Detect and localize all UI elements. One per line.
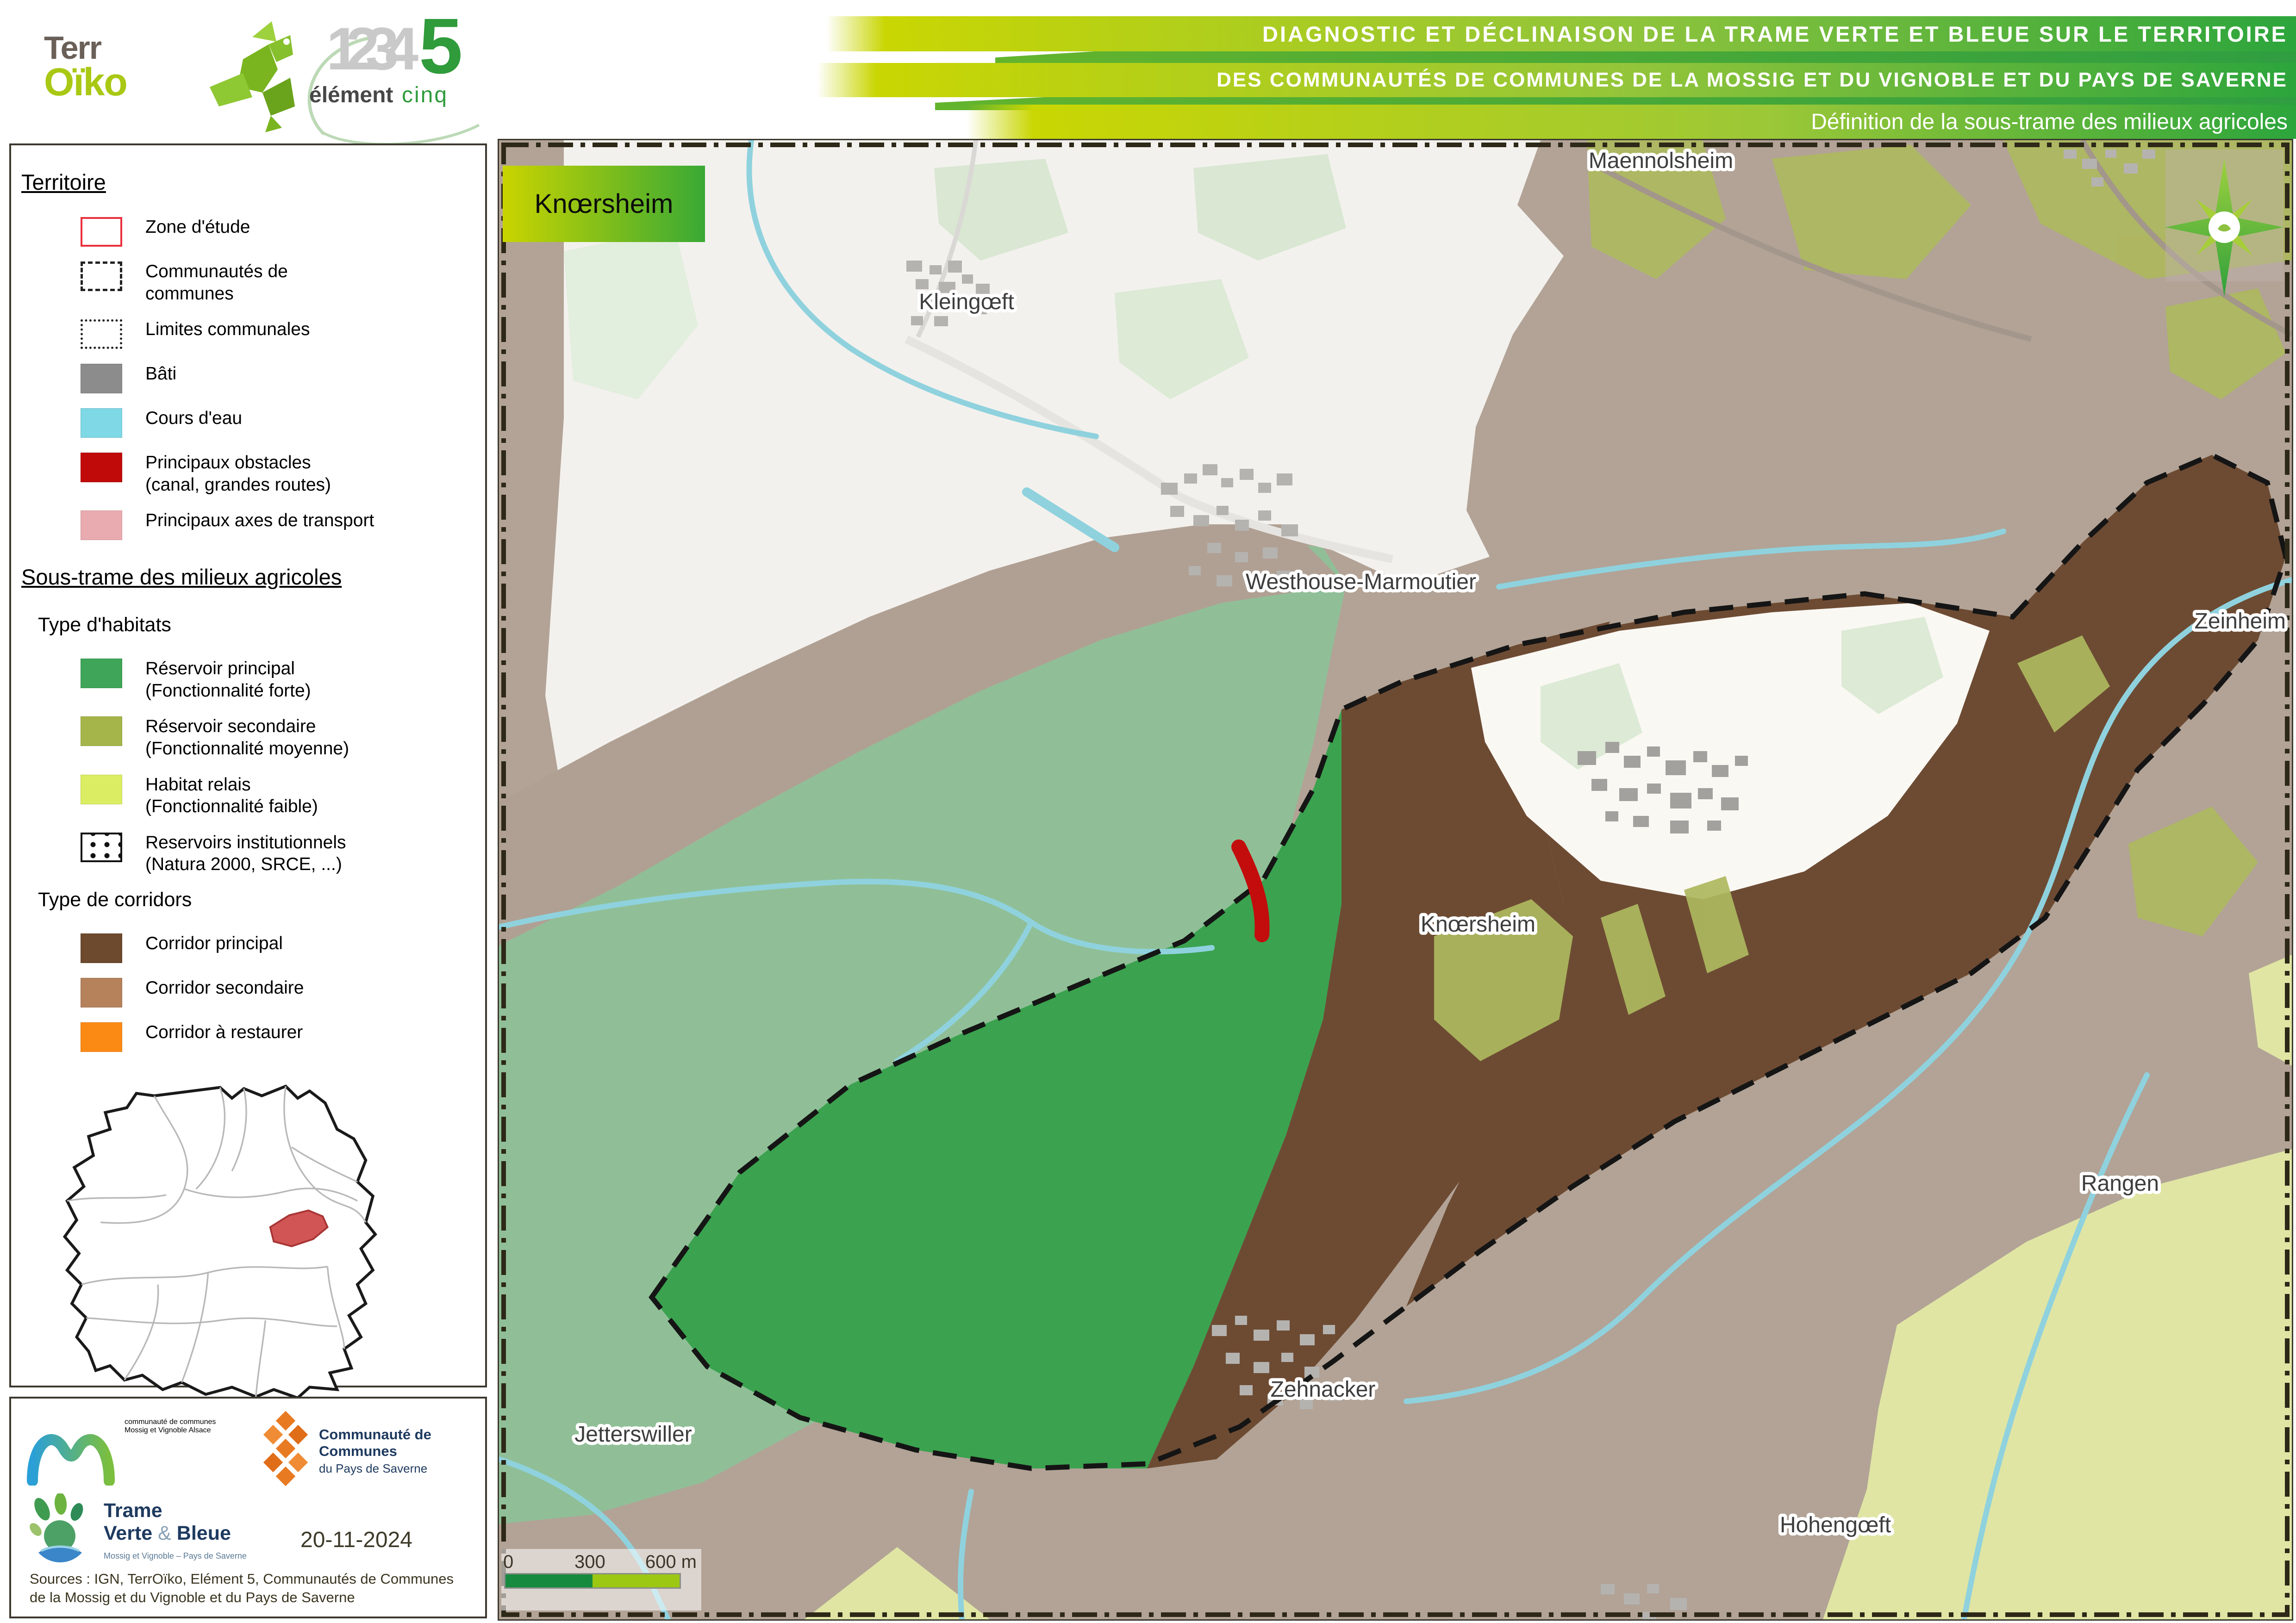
legend-subtitle-corridors: Type de corridors [38, 889, 485, 911]
mossig-logo-icon [24, 1416, 117, 1486]
mossig-et: et [150, 1426, 156, 1434]
corridor-principal-swatch [81, 933, 122, 963]
inset-map [53, 1079, 485, 1433]
cours-eau-swatch [81, 408, 122, 438]
title-line-2: DES COMMUNAUTÉS DE COMMUNES DE LA MOSSIG… [1217, 68, 2296, 92]
sources-text: Sources : IGN, TerrOïko, Elément 5, Comm… [30, 1570, 469, 1607]
title-line-3: Définition de la sous-trame des milieux … [1811, 109, 2296, 135]
legend-item-obstacles: Principaux obstacles(canal, grandes rout… [81, 452, 485, 496]
map-title-box: Knœrsheim [503, 166, 705, 242]
reservoirs-institutionnels-swatch [81, 833, 122, 862]
legend-label: Principaux axes de transport [145, 510, 374, 532]
map-label-jetterswiller: Jetterswiller [574, 1422, 692, 1447]
scale-bar-strip [504, 1573, 681, 1589]
legend-panel: Territoire Zone d'étude Communautés de c… [9, 143, 487, 1387]
title-line-1: DIAGNOSTIC ET DÉCLINAISON DE LA TRAME VE… [1262, 21, 2296, 47]
axes-transport-swatch [81, 510, 122, 540]
mossig-logo-text: communauté de communes Mossig et Vignobl… [125, 1418, 254, 1435]
legend-label: Zone d'étude [145, 216, 250, 238]
legend-item-zone-etude: Zone d'étude [81, 216, 485, 247]
legend-label: Corridor à restaurer [145, 1021, 303, 1044]
map[interactable]: Maennolsheim Kleingœft Westhouse-Marmout… [498, 139, 2293, 1621]
map-label-knoersheim: Knœrsheim [1421, 912, 1535, 937]
scale-ticks: 0 300 600 m [501, 1552, 701, 1572]
legend-label: Réservoir secondaire(Fonctionnalité moye… [145, 715, 349, 759]
legend-subtitle-habitats: Type d'habitats [38, 614, 485, 636]
inset-territory-outline [65, 1086, 375, 1398]
map-label-rangen: Rangen [2081, 1171, 2159, 1196]
reservoir-secondaire-swatch [81, 716, 122, 746]
obstacles-swatch [81, 453, 122, 482]
mossig-region: Alsace [188, 1426, 211, 1434]
saverne-logo-text: Communauté de Communes du Pays de Savern… [319, 1426, 486, 1476]
element5-word2: cinq [402, 82, 448, 108]
limites-swatch [81, 319, 122, 349]
legend-label: Cours d'eau [145, 407, 242, 429]
legend-title-territoire: Territoire [21, 169, 485, 195]
scale-tick-0: 0 [503, 1552, 513, 1573]
saverne-logo-icon [259, 1410, 314, 1489]
map-label-hohengoeft: Hohengœft [1780, 1513, 1891, 1537]
zone-etude-swatch [81, 217, 122, 247]
legend-label: Principaux obstacles(canal, grandes rout… [145, 452, 331, 496]
map-canvas[interactable]: Maennolsheim Kleingœft Westhouse-Marmout… [499, 140, 2292, 1619]
legend-item-corridor-restaurer: Corridor à restaurer [81, 1021, 485, 1052]
legend-label: Corridor principal [145, 933, 283, 955]
legend-item-corridor-secondaire: Corridor secondaire [81, 977, 485, 1007]
tvb-logo-icon [23, 1493, 97, 1567]
bati-swatch [81, 364, 122, 393]
map-label-kleingoeft: Kleingœft [919, 290, 1014, 314]
saverne-line2: du Pays de Saverne [319, 1461, 486, 1476]
scale-tick-600: 600 m [645, 1552, 697, 1573]
scale-segment-1 [505, 1574, 593, 1587]
element5-logo: 1234 5 élément cinq [301, 14, 486, 134]
element5-word1: élément [309, 82, 393, 108]
element5-numbers: 1234 [326, 14, 405, 83]
scale-segment-2 [593, 1574, 680, 1587]
legend-item-reservoir-principal: Réservoir principal(Fonctionnalité forte… [81, 658, 485, 702]
legend-item-habitat-relais: Habitat relais(Fonctionnalité faible) [81, 774, 485, 818]
legend-title-soustrame: Sous-trame des milieux agricoles [21, 564, 485, 590]
map-label-zehnacker: Zehnacker [1271, 1377, 1376, 1402]
legend-label: Communautés de communes [145, 261, 340, 305]
scale-tick-300: 300 [574, 1552, 605, 1573]
legend-label: Limites communales [145, 318, 310, 341]
map-label-westhouse: Westhouse-Marmoutier [1246, 570, 1476, 594]
legend-item-cours-eau: Cours d'eau [81, 407, 485, 438]
reservoir-principal-swatch [81, 659, 122, 688]
legend-label: Reservoirs institutionnels(Natura 2000, … [145, 832, 346, 876]
legend-item-axes-transport: Principaux axes de transport [81, 510, 485, 540]
tvb-line1: Trame [104, 1499, 256, 1522]
legend-label: Habitat relais(Fonctionnalité faible) [145, 774, 318, 818]
legend-label: Réservoir principal(Fonctionnalité forte… [145, 658, 311, 702]
corridor-restaurer-swatch [81, 1022, 122, 1052]
legend-item-communautes: Communautés de communes [81, 261, 485, 305]
communautes-swatch [81, 261, 122, 291]
tvb-logo-text: Trame Verte & Bleue Mossig et Vignoble –… [104, 1499, 256, 1561]
inset-map-canvas [53, 1079, 423, 1430]
terroiko-logo: Terr Oïko [44, 13, 303, 138]
mossig-name1: Mossig [125, 1426, 148, 1434]
mossig-name2: Vignoble [158, 1426, 187, 1434]
scale-bar: 0 300 600 m [501, 1549, 701, 1611]
frog-icon [183, 18, 312, 138]
legend-label: Bâti [145, 363, 176, 385]
title-bar-3: Définition de la sous-trame des milieux … [967, 105, 2296, 139]
saverne-line1: Communauté de Communes [319, 1426, 486, 1460]
title-bar-1: DIAGNOSTIC ET DÉCLINAISON DE LA TRAME VE… [826, 16, 2296, 51]
compass-icon [2165, 149, 2284, 297]
tvb-line2: Verte & Bleue [104, 1522, 256, 1545]
legend-item-corridor-principal: Corridor principal [81, 933, 485, 963]
legend-item-reservoir-secondaire: Réservoir secondaire(Fonctionnalité moye… [81, 715, 485, 759]
mossig-top-line: communauté de communes [125, 1418, 216, 1426]
legend-item-bati: Bâti [81, 363, 485, 393]
element5-five: 5 [419, 1, 463, 92]
corridor-secondaire-swatch [81, 978, 122, 1007]
legend-label: Corridor secondaire [145, 977, 304, 999]
tvb-subtitle: Mossig et Vignoble – Pays de Saverne [104, 1551, 256, 1561]
legend-item-limites: Limites communales [81, 318, 485, 349]
map-label-zeinheim: Zeinheim [2195, 609, 2286, 634]
map-date: 20-11-2024 [300, 1527, 412, 1553]
habitat-relais-swatch [81, 775, 122, 804]
title-bar-2: DES COMMUNAUTÉS DE COMMUNES DE LA MOSSIG… [817, 63, 2296, 97]
legend-item-reservoirs-institutionnels: Reservoirs institutionnels(Natura 2000, … [81, 832, 485, 876]
credits-panel: communauté de communes Mossig et Vignobl… [9, 1397, 487, 1618]
map-label-maennolsheim: Maennolsheim [1589, 149, 1733, 173]
page: Terr Oïko 1234 5 élément cinq D [0, 0, 2296, 1623]
